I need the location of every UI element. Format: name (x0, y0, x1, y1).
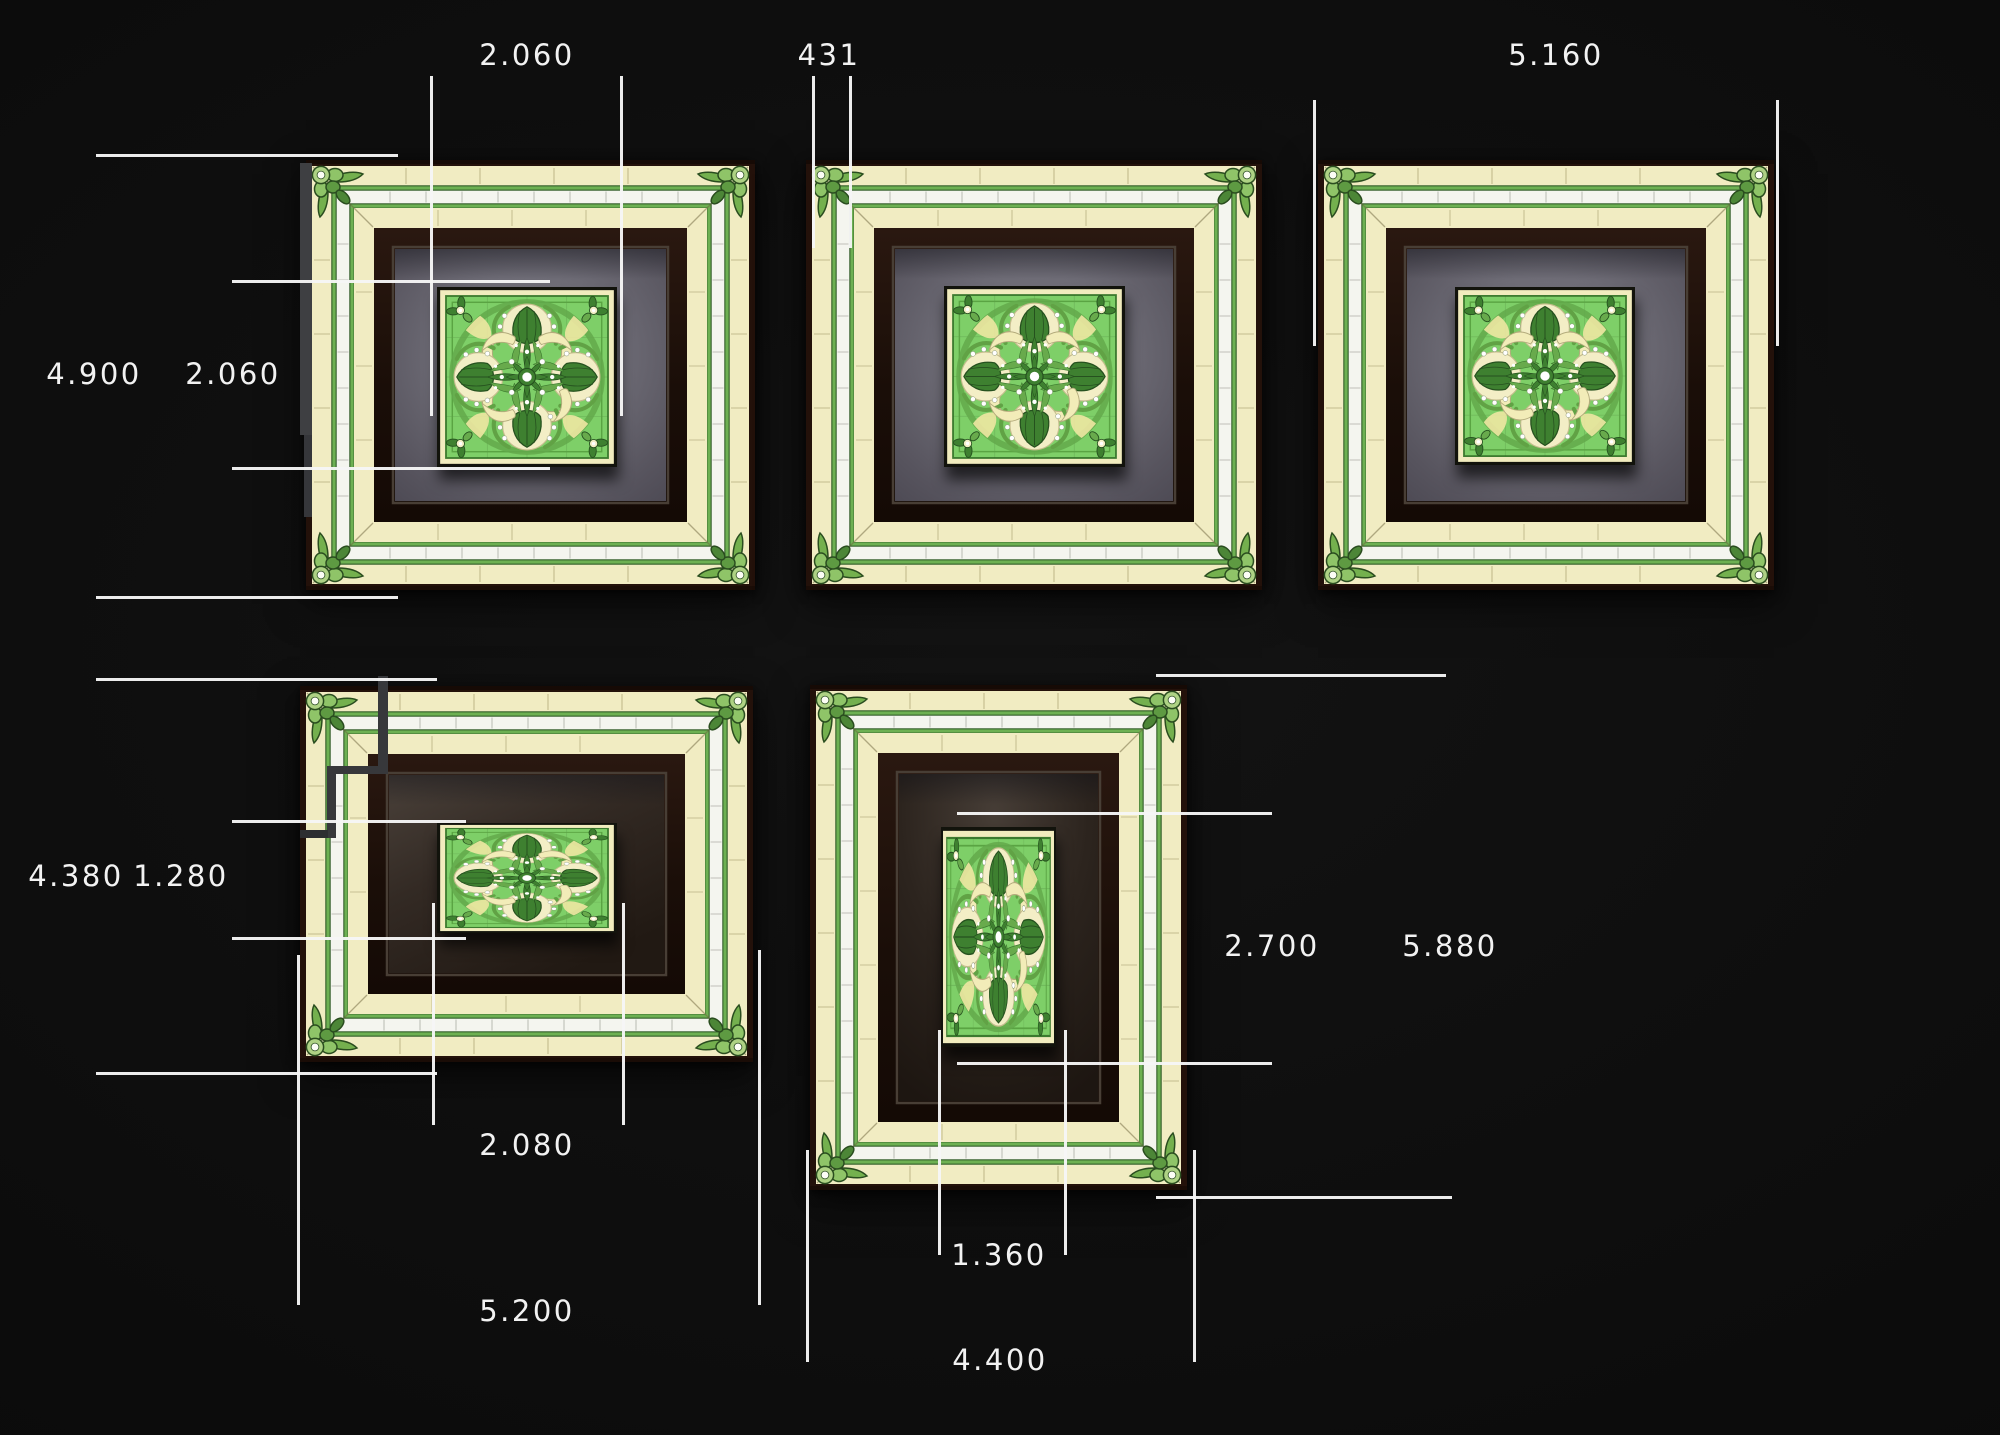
dimension-line-vertical (812, 76, 815, 248)
dimension-line-vertical (758, 950, 761, 1305)
section-cut-mark (327, 766, 336, 838)
center-tile-bottom-center (941, 827, 1056, 1047)
section-cut-mark (327, 766, 388, 774)
dimension-line-vertical (1064, 1030, 1067, 1255)
dimension-label-top-medallion-width: 2.060 (479, 38, 575, 72)
dimension-line-horizontal (96, 678, 437, 681)
dimension-line-horizontal (957, 1062, 1272, 1065)
dimension-line-horizontal (1156, 674, 1446, 677)
dimension-label-bottom-left-panel-width: 5.200 (479, 1294, 575, 1328)
dimension-label-left-panel-height: 4.900 (46, 357, 142, 391)
center-tile-top-left (437, 287, 617, 467)
dimension-line-vertical (622, 903, 625, 1125)
dimension-label-top-right-panel-width: 5.160 (1508, 38, 1604, 72)
center-tile-bottom-left (437, 823, 617, 933)
dimension-label-bottom-left-medallion-width: 2.080 (479, 1128, 575, 1162)
dimension-line-horizontal (1156, 1196, 1452, 1199)
dimension-line-vertical (806, 1150, 809, 1362)
dimension-label-left-medallion-height: 2.060 (185, 357, 281, 391)
dimension-line-vertical (1313, 100, 1316, 346)
dimension-label-bottom-left-medallion-height: 1.280 (133, 859, 229, 893)
dimension-line-horizontal (232, 467, 550, 470)
blueprint-canvas: 2.060 431 5.160 4.900 2.060 4.380 1.280 … (0, 0, 2000, 1435)
section-cut-mark (304, 435, 312, 517)
dimension-label-bottom-center-panel-width: 4.400 (952, 1343, 1048, 1377)
dimension-label-border-width: 431 (798, 38, 861, 72)
center-tile-top-center (944, 286, 1125, 467)
dimension-line-vertical (849, 76, 852, 248)
section-cut-mark (300, 163, 312, 435)
dimension-line-horizontal (96, 1072, 437, 1075)
section-cut-mark (300, 830, 328, 838)
dimension-line-vertical (430, 76, 433, 416)
dimension-line-vertical (1193, 1150, 1196, 1362)
dimension-line-horizontal (96, 596, 398, 599)
dimension-label-bottom-center-medallion-height: 2.700 (1224, 929, 1320, 963)
dimension-line-vertical (620, 76, 623, 416)
dimension-line-vertical (297, 955, 300, 1305)
dimension-label-bottom-center-medallion-width: 1.360 (951, 1238, 1047, 1272)
dimension-line-vertical (938, 1030, 941, 1255)
dimension-line-vertical (432, 903, 435, 1125)
dimension-line-horizontal (96, 154, 398, 157)
dimension-line-horizontal (232, 937, 466, 940)
section-cut-mark (378, 676, 388, 772)
dimension-label-bottom-left-panel-height: 4.380 (28, 859, 124, 893)
dimension-line-vertical (1776, 100, 1779, 346)
dimension-line-horizontal (957, 812, 1272, 815)
dimension-line-horizontal (232, 820, 466, 823)
center-tile-top-right (1455, 287, 1635, 465)
dimension-line-horizontal (232, 280, 550, 283)
dimension-label-bottom-center-panel-height: 5.880 (1402, 929, 1498, 963)
